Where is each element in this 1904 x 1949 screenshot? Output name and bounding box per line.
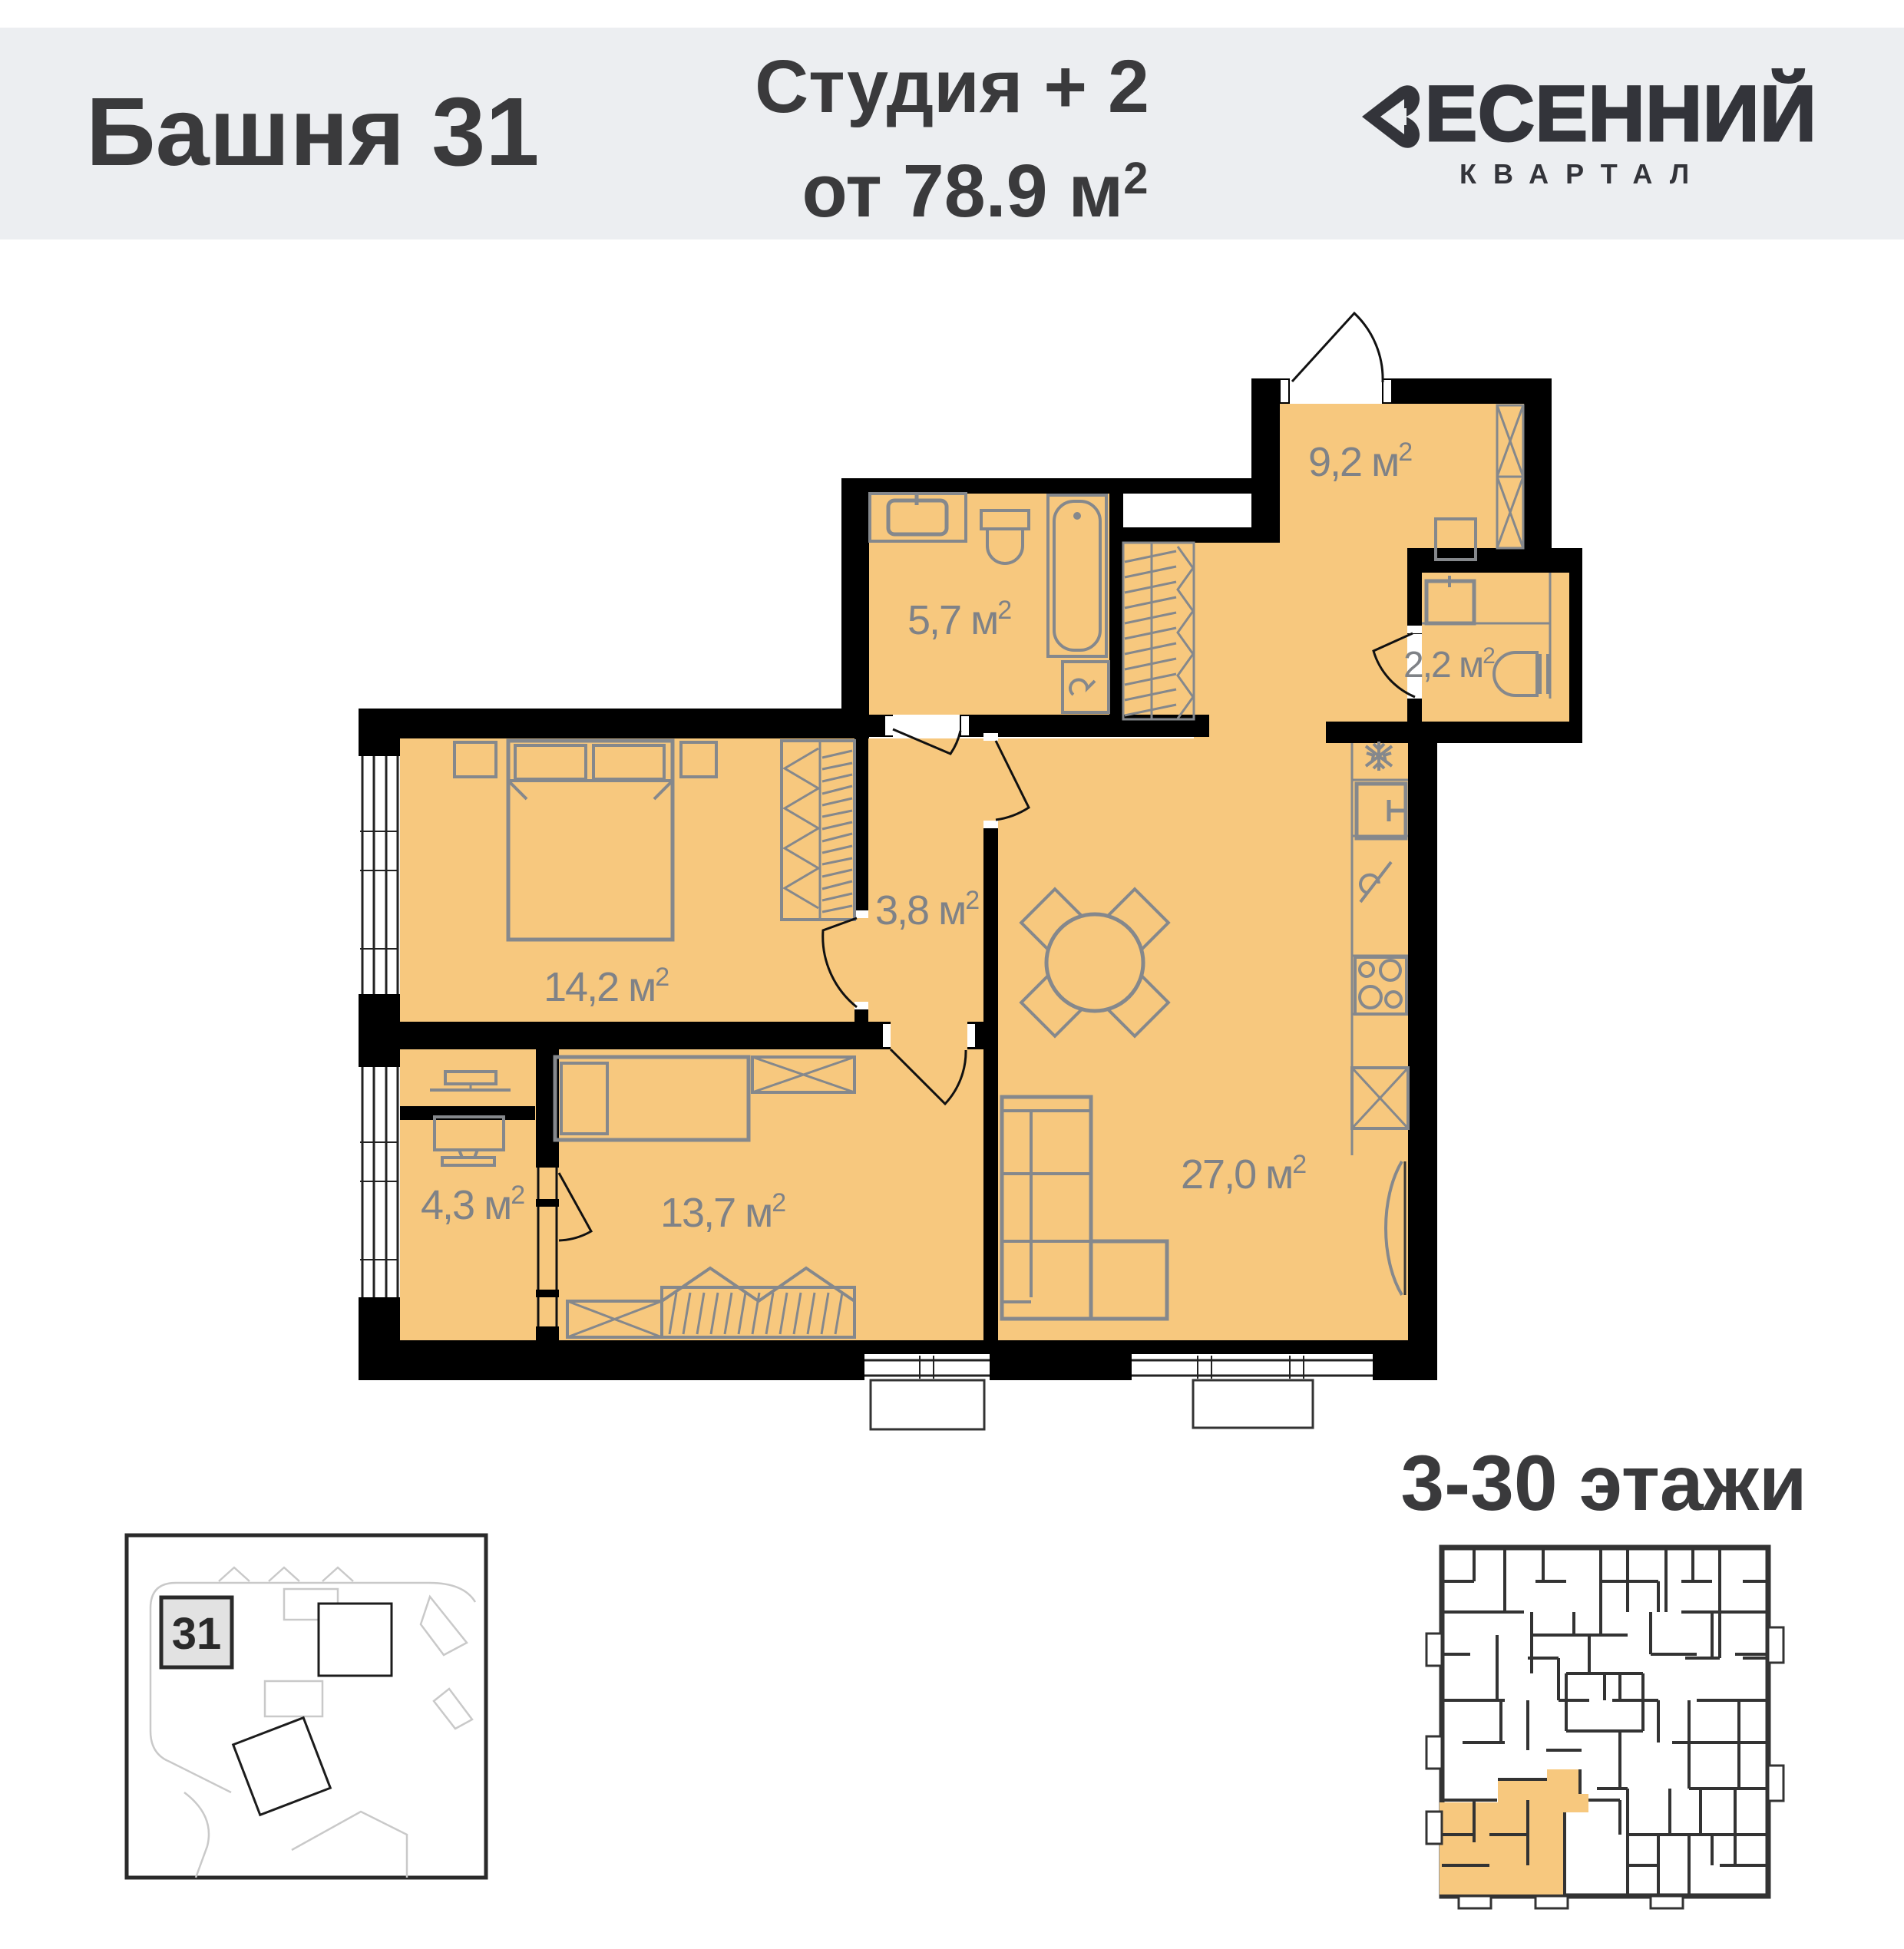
svg-text:5,7 м2: 5,7 м2 — [907, 596, 1011, 643]
svg-text:31: 31 — [172, 1609, 222, 1659]
svg-text:3,8 м2: 3,8 м2 — [875, 886, 979, 933]
svg-text:Студия + 2: Студия + 2 — [755, 45, 1149, 128]
svg-text:ЕСЕННИЙ: ЕСЕННИЙ — [1425, 69, 1817, 157]
svg-text:27,0 м2: 27,0 м2 — [1181, 1150, 1306, 1197]
svg-text:Башня 31: Башня 31 — [86, 78, 539, 186]
svg-text:13,7 м2: 13,7 м2 — [660, 1188, 785, 1236]
svg-text:2,2 м2: 2,2 м2 — [1403, 643, 1495, 685]
svg-text:КВАРТАЛ: КВАРТАЛ — [1459, 158, 1706, 190]
svg-text:4,3 м2: 4,3 м2 — [421, 1181, 524, 1228]
svg-text:14,2 м2: 14,2 м2 — [544, 963, 669, 1010]
svg-text:от 78.9 м2: от 78.9 м2 — [802, 149, 1148, 233]
svg-text:3-30 этажи: 3-30 этажи — [1400, 1439, 1806, 1527]
svg-text:9,2 м2: 9,2 м2 — [1308, 438, 1412, 485]
